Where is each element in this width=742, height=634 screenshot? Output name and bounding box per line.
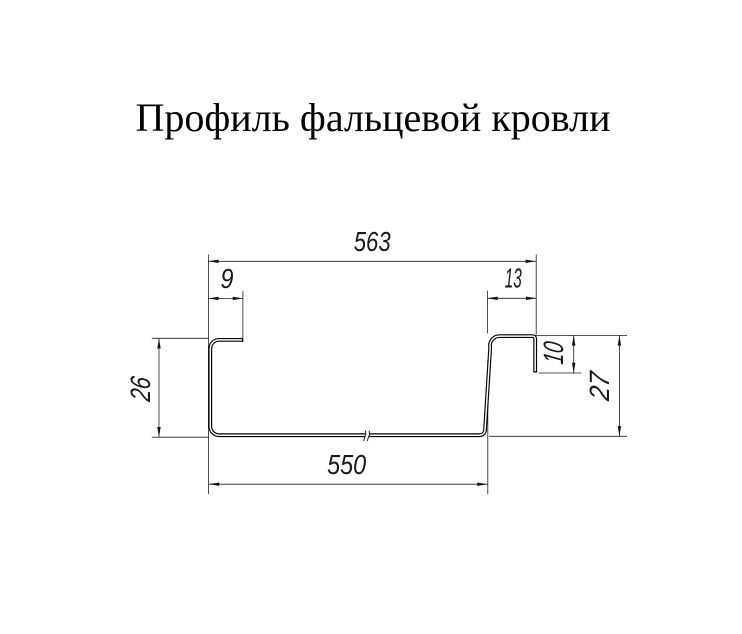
svg-text:26: 26 (125, 374, 156, 403)
svg-text:563: 563 (354, 226, 391, 257)
svg-text:13: 13 (505, 263, 522, 294)
svg-text:10: 10 (538, 339, 569, 366)
svg-text:9: 9 (221, 263, 234, 294)
svg-text:550: 550 (327, 449, 366, 480)
svg-text:Профиль фальцевой кровли: Профиль фальцевой кровли (136, 95, 611, 140)
svg-text:27: 27 (584, 369, 615, 403)
